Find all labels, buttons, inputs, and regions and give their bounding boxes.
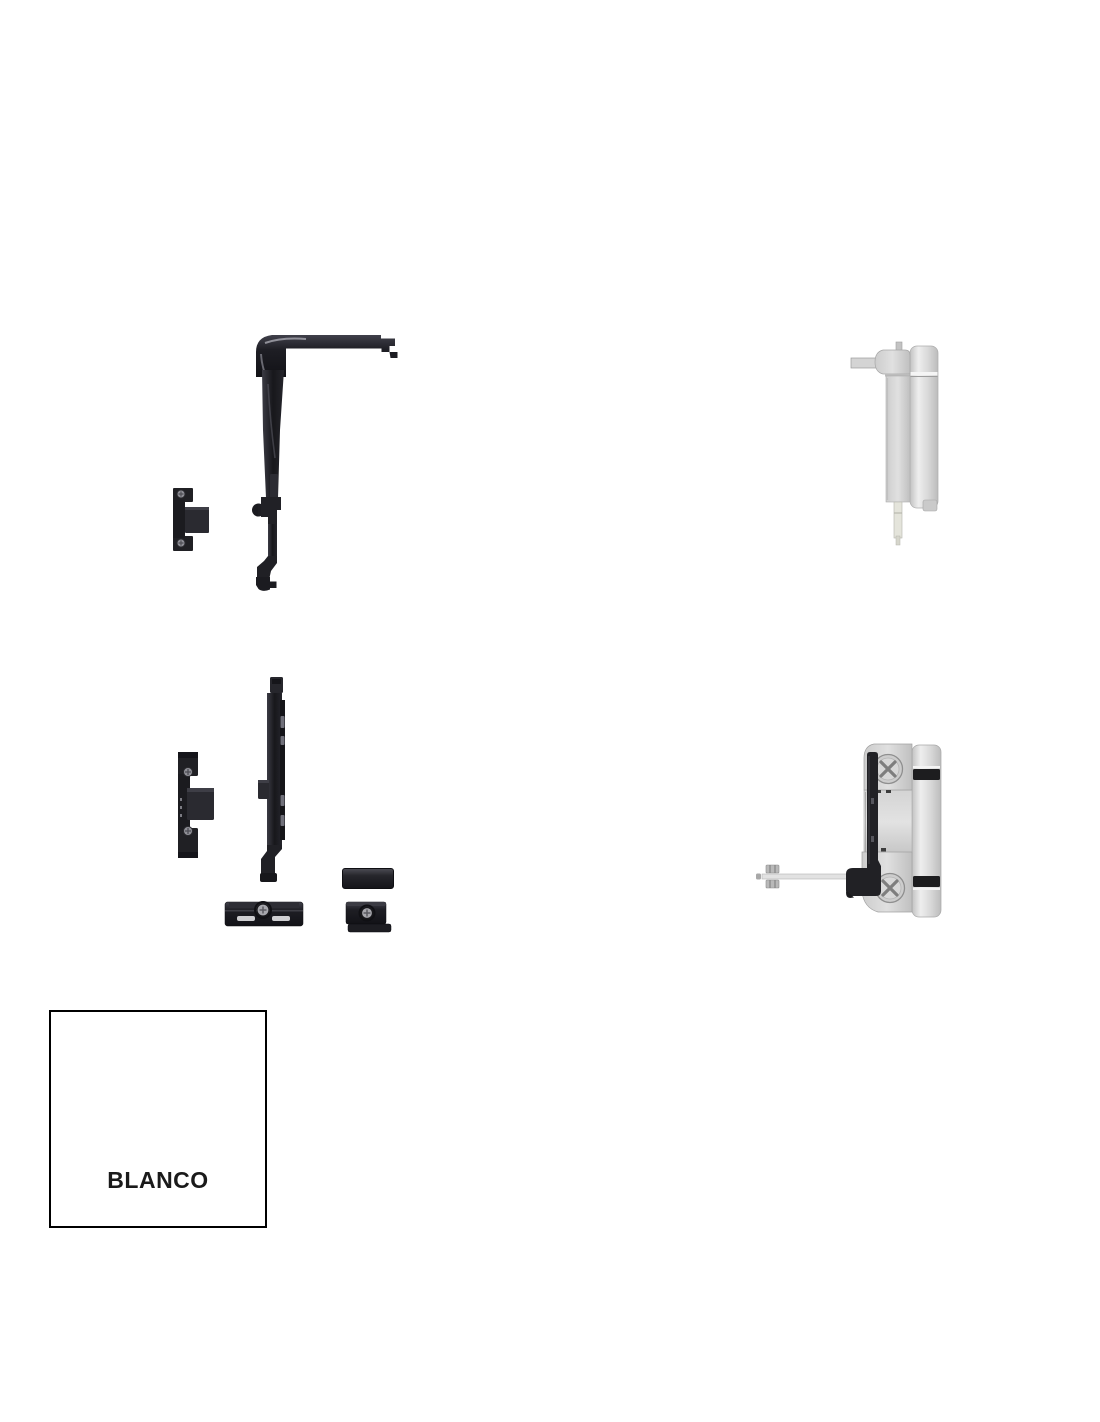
screw-block-part <box>344 898 392 934</box>
locking-rail-part <box>256 674 292 886</box>
keeper-large-image <box>176 750 218 862</box>
spacer-bar-part <box>342 868 394 889</box>
locking-bracket <box>846 752 881 898</box>
keeper-large-part <box>176 750 218 862</box>
corner-drive-image <box>248 330 404 592</box>
rubber-band <box>913 876 940 887</box>
hinge-bottom-part <box>750 740 950 922</box>
hinge-bottom-image <box>750 740 950 922</box>
mounting-slot <box>272 916 290 921</box>
hinge-top-lower-pin <box>894 502 902 538</box>
slotted-plate-part <box>224 898 304 929</box>
screw-icon <box>184 768 193 777</box>
rubber-band <box>913 769 940 780</box>
swatch-label: BLANCO <box>51 1167 265 1194</box>
keeper-small-image <box>172 486 212 554</box>
mounting-slot <box>237 916 255 921</box>
locking-rail-foot <box>260 873 277 882</box>
screw-icon <box>184 827 193 836</box>
corner-drive-foot <box>256 577 277 591</box>
slotted-plate-image <box>224 898 304 929</box>
hinge-top-arm-head <box>875 350 910 374</box>
color-swatch-blanco: BLANCO <box>49 1010 267 1228</box>
hinge-top-cylinder <box>910 346 938 508</box>
hinge-top-image <box>845 336 950 551</box>
hinge-top-part <box>845 336 950 551</box>
keeper-small-striker-block <box>185 507 209 533</box>
keeper-large-striker-block <box>187 788 214 820</box>
corner-drive-part <box>248 330 404 592</box>
screw-icon <box>255 902 271 918</box>
locking-rail-image <box>256 674 292 886</box>
screw-icon <box>177 490 185 498</box>
product-sheet: BLANCO <box>0 0 1100 1422</box>
hinge-top-body <box>886 376 910 502</box>
keeper-small-part <box>172 486 212 554</box>
screw-icon <box>360 906 375 921</box>
hinge-bottom-rod <box>762 874 854 879</box>
screw-block-image <box>344 898 392 934</box>
screw-icon <box>177 539 185 547</box>
